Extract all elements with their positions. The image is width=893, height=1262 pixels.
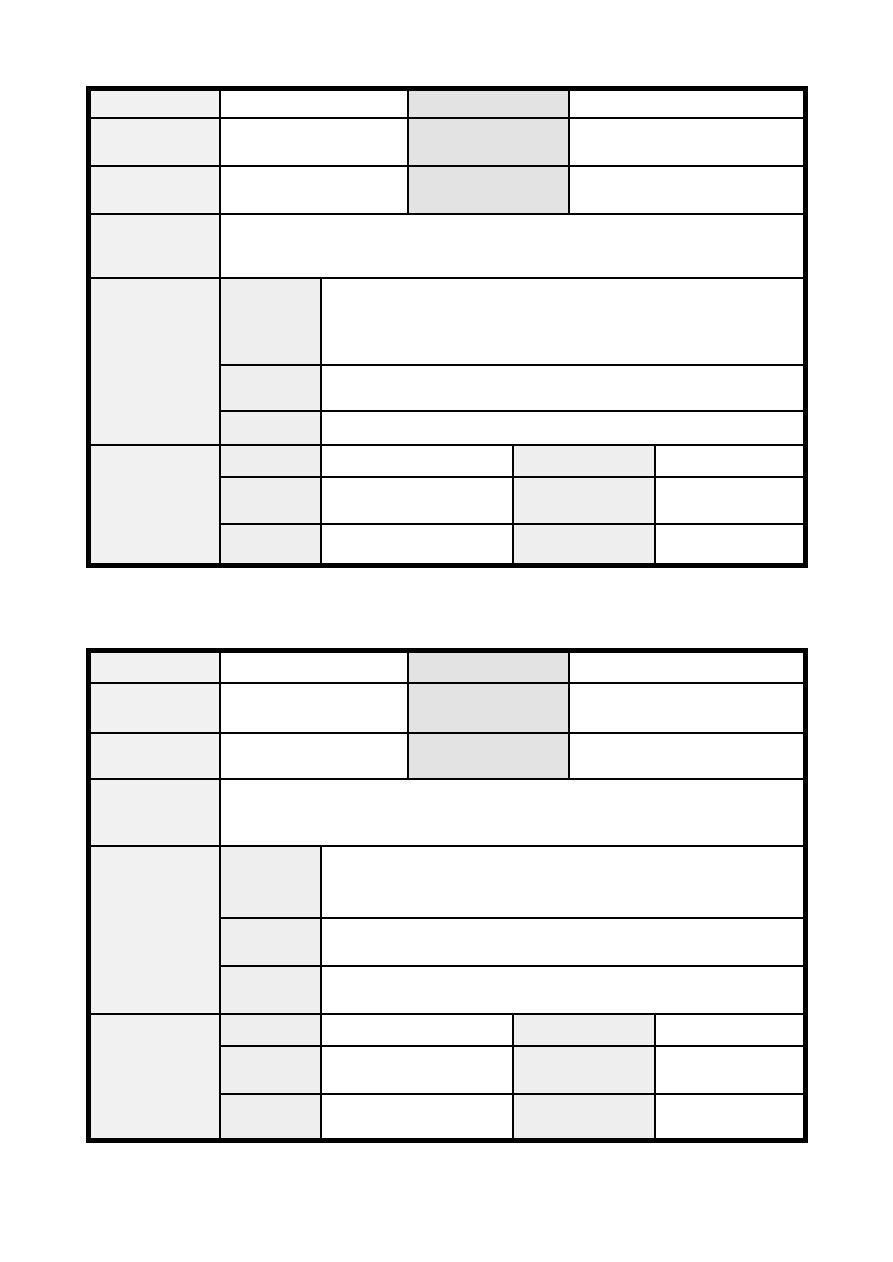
form-table-1 — [86, 86, 808, 568]
sub-header-cell — [513, 477, 655, 524]
table-row — [89, 1014, 806, 1046]
sub-header-cell — [513, 524, 655, 566]
field-cell — [321, 1094, 513, 1141]
section-header-cell — [89, 846, 220, 1014]
field-cell — [220, 118, 408, 166]
table-row — [89, 651, 806, 683]
row-header-cell — [89, 118, 220, 166]
table-row — [89, 779, 806, 846]
accent-header-cell — [408, 733, 569, 779]
row-header-cell — [89, 733, 220, 779]
field-cell — [220, 651, 408, 683]
sub-header-cell — [220, 445, 321, 477]
field-cell — [321, 411, 806, 445]
field-cell-wide — [220, 214, 806, 278]
table-row — [89, 733, 806, 779]
field-cell — [321, 477, 513, 524]
field-cell — [569, 166, 806, 214]
accent-header-cell — [408, 166, 569, 214]
sub-header-cell — [220, 1046, 321, 1094]
field-cell — [569, 118, 806, 166]
sub-header-cell — [220, 918, 321, 966]
accent-header-cell — [408, 118, 569, 166]
table-row — [89, 166, 806, 214]
field-cell — [569, 89, 806, 118]
sub-header-cell — [220, 846, 321, 918]
row-header-cell — [89, 166, 220, 214]
sub-header-cell — [220, 1014, 321, 1046]
sub-header-cell — [220, 966, 321, 1014]
field-cell — [321, 278, 806, 365]
field-cell — [655, 445, 806, 477]
field-cell — [321, 1046, 513, 1094]
field-cell-wide — [220, 779, 806, 846]
table-row — [89, 445, 806, 477]
field-cell — [321, 445, 513, 477]
sub-header-cell — [220, 524, 321, 566]
field-cell — [569, 683, 806, 733]
table-row — [89, 683, 806, 733]
sub-header-cell — [220, 1094, 321, 1141]
table-row — [89, 214, 806, 278]
sub-header-cell — [220, 411, 321, 445]
field-cell — [321, 846, 806, 918]
sub-header-cell — [513, 1014, 655, 1046]
form-table-2 — [86, 648, 808, 1143]
field-cell — [655, 477, 806, 524]
field-cell — [220, 733, 408, 779]
table-row — [89, 846, 806, 918]
sub-header-cell — [220, 278, 321, 365]
table-row — [89, 89, 806, 118]
field-cell — [655, 1046, 806, 1094]
field-cell — [321, 524, 513, 566]
field-cell — [321, 365, 806, 411]
field-cell — [220, 89, 408, 118]
row-header-cell — [89, 651, 220, 683]
field-cell — [321, 966, 806, 1014]
document-page — [0, 0, 893, 1262]
row-header-cell — [89, 683, 220, 733]
sub-header-cell — [220, 365, 321, 411]
table-row — [89, 278, 806, 365]
sub-header-cell — [513, 445, 655, 477]
section-header-cell — [89, 445, 220, 566]
row-header-cell — [89, 214, 220, 278]
row-header-cell — [89, 779, 220, 846]
field-cell — [220, 166, 408, 214]
accent-header-cell — [408, 89, 569, 118]
field-cell — [655, 1094, 806, 1141]
row-header-cell — [89, 89, 220, 118]
accent-header-cell — [408, 651, 569, 683]
field-cell — [569, 733, 806, 779]
table-row — [89, 118, 806, 166]
field-cell — [655, 1014, 806, 1046]
field-cell — [569, 651, 806, 683]
sub-header-cell — [513, 1046, 655, 1094]
accent-header-cell — [408, 683, 569, 733]
sub-header-cell — [220, 477, 321, 524]
section-header-cell — [89, 1014, 220, 1141]
field-cell — [220, 683, 408, 733]
field-cell — [321, 918, 806, 966]
field-cell — [655, 524, 806, 566]
sub-header-cell — [513, 1094, 655, 1141]
section-header-cell — [89, 278, 220, 445]
field-cell — [321, 1014, 513, 1046]
